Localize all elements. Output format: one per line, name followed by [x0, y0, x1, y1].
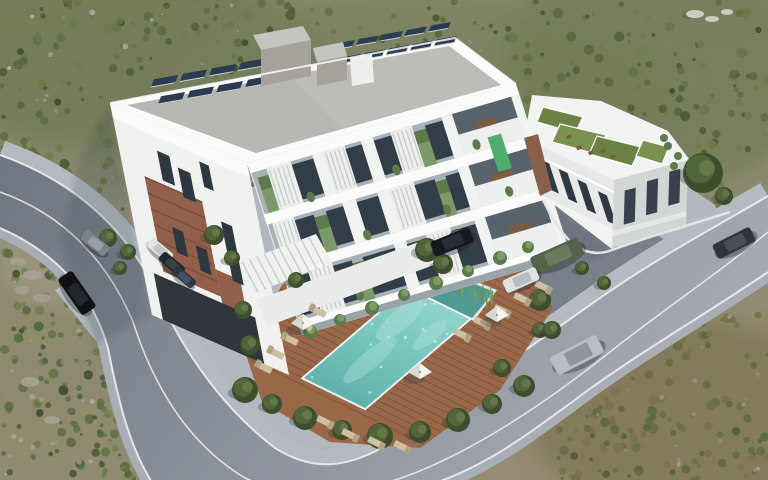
aerial-render-image	[0, 0, 768, 480]
scene-svg	[0, 0, 768, 480]
